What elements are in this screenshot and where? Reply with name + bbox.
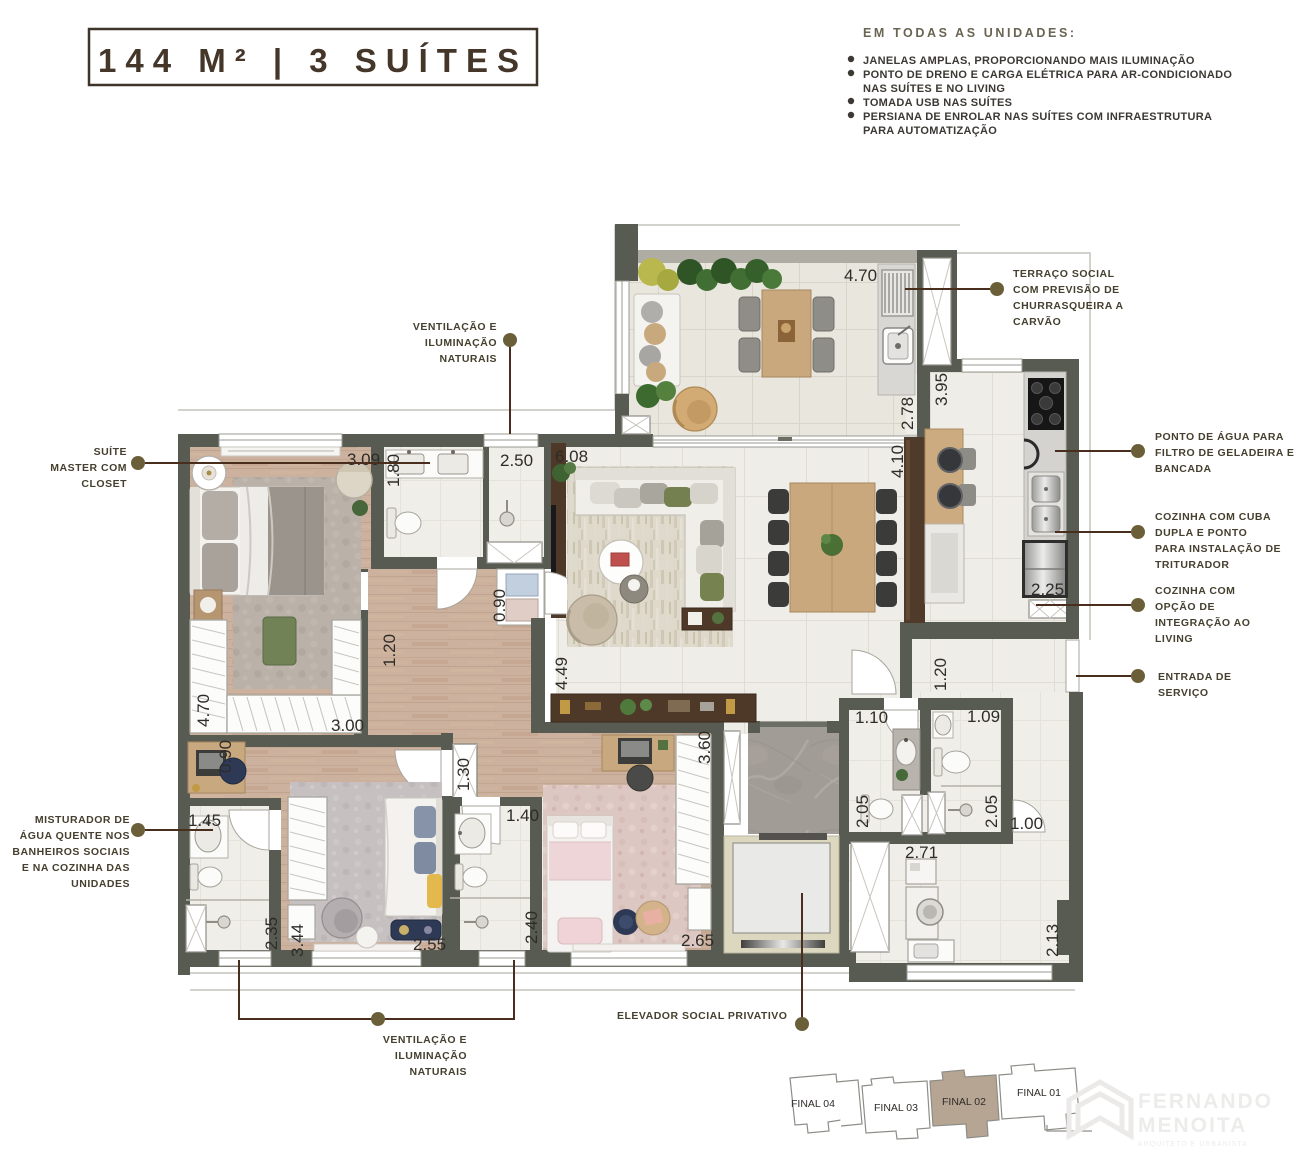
- svg-text:3.95: 3.95: [932, 373, 951, 406]
- svg-text:1.30: 1.30: [454, 758, 473, 791]
- svg-text:PARA INSTALAÇÃO DE: PARA INSTALAÇÃO DE: [1155, 542, 1281, 555]
- svg-text:FINAL 02: FINAL 02: [942, 1096, 986, 1108]
- svg-text:1.80: 1.80: [384, 454, 403, 487]
- svg-text:0.90: 0.90: [216, 740, 235, 773]
- svg-text:144 M² | 3 SUÍTES: 144 M² | 3 SUÍTES: [98, 42, 528, 79]
- svg-text:E NA COZINHA DAS: E NA COZINHA DAS: [22, 862, 130, 874]
- svg-text:BANHEIROS SOCIAIS: BANHEIROS SOCIAIS: [12, 846, 130, 858]
- svg-text:TRITURADOR: TRITURADOR: [1155, 559, 1229, 571]
- svg-text:6.08: 6.08: [555, 447, 588, 466]
- svg-text:4.70: 4.70: [194, 694, 213, 727]
- svg-text:PERSIANA DE ENROLAR NAS SUÍTES: PERSIANA DE ENROLAR NAS SUÍTES COM INFRA…: [863, 110, 1212, 123]
- svg-text:TERRAÇO SOCIAL: TERRAÇO SOCIAL: [1013, 268, 1115, 280]
- svg-text:2.35: 2.35: [262, 917, 281, 950]
- svg-text:2.05: 2.05: [853, 795, 872, 828]
- svg-text:NATURAIS: NATURAIS: [410, 1066, 467, 1078]
- svg-text:2.65: 2.65: [681, 931, 714, 950]
- svg-text:MISTURADOR DE: MISTURADOR DE: [35, 814, 130, 826]
- svg-text:BANCADA: BANCADA: [1155, 463, 1212, 475]
- svg-text:2.55: 2.55: [413, 935, 446, 954]
- svg-text:MASTER COM: MASTER COM: [50, 462, 127, 474]
- svg-text:NAS SUÍTES E NO LIVING: NAS SUÍTES E NO LIVING: [863, 82, 1005, 95]
- svg-text:FERNANDO: FERNANDO: [1138, 1090, 1273, 1113]
- svg-text:COZINHA COM CUBA: COZINHA COM CUBA: [1155, 511, 1271, 523]
- svg-text:3.00: 3.00: [331, 716, 364, 735]
- svg-text:1.20: 1.20: [931, 658, 950, 691]
- svg-text:NATURAIS: NATURAIS: [440, 353, 497, 365]
- svg-text:PONTO DE ÁGUA PARA: PONTO DE ÁGUA PARA: [1155, 430, 1284, 443]
- svg-text:0.90: 0.90: [490, 589, 509, 622]
- svg-text:4.49: 4.49: [552, 657, 571, 690]
- svg-text:1.09: 1.09: [967, 707, 1000, 726]
- svg-text:1.10: 1.10: [855, 708, 888, 727]
- svg-text:4.70: 4.70: [844, 266, 877, 285]
- svg-text:VENTILAÇÃO E: VENTILAÇÃO E: [413, 320, 497, 333]
- svg-text:CLOSET: CLOSET: [81, 478, 127, 490]
- svg-text:2.13: 2.13: [1043, 924, 1062, 957]
- svg-text:INTEGRAÇÃO AO: INTEGRAÇÃO AO: [1155, 616, 1250, 629]
- svg-text:FINAL 04: FINAL 04: [791, 1098, 835, 1110]
- svg-text:2.71: 2.71: [905, 843, 938, 862]
- svg-text:2.05: 2.05: [982, 795, 1001, 828]
- svg-text:ENTRADA DE: ENTRADA DE: [1158, 671, 1231, 683]
- svg-text:CARVÃO: CARVÃO: [1013, 315, 1061, 328]
- svg-text:FINAL 03: FINAL 03: [874, 1102, 918, 1114]
- svg-text:COZINHA COM: COZINHA COM: [1155, 585, 1235, 597]
- svg-text:2.25: 2.25: [1031, 580, 1064, 599]
- svg-text:DUPLA E PONTO: DUPLA E PONTO: [1155, 527, 1247, 539]
- svg-text:2.50: 2.50: [500, 451, 533, 470]
- svg-text:SUÍTE: SUÍTE: [94, 445, 127, 458]
- svg-text:3.60: 3.60: [695, 731, 714, 764]
- svg-text:PONTO DE DRENO E CARGA ELÉTRIC: PONTO DE DRENO E CARGA ELÉTRICA PARA AR-…: [863, 68, 1232, 81]
- svg-text:UNIDADES: UNIDADES: [71, 878, 130, 890]
- svg-text:COM PREVISÃO DE: COM PREVISÃO DE: [1013, 283, 1120, 296]
- svg-text:ARQUITETO E URBANISTA: ARQUITETO E URBANISTA: [1138, 1141, 1248, 1148]
- svg-text:4.10: 4.10: [888, 445, 907, 478]
- svg-text:PARA AUTOMATIZAÇÃO: PARA AUTOMATIZAÇÃO: [863, 124, 997, 137]
- svg-text:CHURRASQUEIRA A: CHURRASQUEIRA A: [1013, 300, 1124, 312]
- svg-text:3.09: 3.09: [347, 450, 380, 469]
- svg-text:EM TODAS AS UNIDADES:: EM TODAS AS UNIDADES:: [863, 26, 1077, 40]
- svg-text:OPÇÃO DE: OPÇÃO DE: [1155, 600, 1215, 613]
- svg-text:2.78: 2.78: [898, 397, 917, 430]
- svg-text:3.44: 3.44: [288, 924, 307, 957]
- svg-text:LIVING: LIVING: [1155, 633, 1193, 645]
- svg-text:ÁGUA QUENTE NOS: ÁGUA QUENTE NOS: [20, 829, 130, 842]
- svg-text:1.00: 1.00: [1010, 814, 1043, 833]
- svg-text:ILUMINAÇÃO: ILUMINAÇÃO: [425, 336, 497, 349]
- svg-text:MENOITA: MENOITA: [1138, 1114, 1247, 1137]
- svg-text:1.40: 1.40: [506, 806, 539, 825]
- svg-text:ELEVADOR SOCIAL PRIVATIVO: ELEVADOR SOCIAL PRIVATIVO: [617, 1010, 787, 1022]
- svg-text:1.45: 1.45: [188, 811, 221, 830]
- svg-text:2.40: 2.40: [522, 911, 541, 944]
- svg-text:FILTRO DE GELADEIRA E: FILTRO DE GELADEIRA E: [1155, 447, 1294, 459]
- svg-text:FINAL 01: FINAL 01: [1017, 1087, 1061, 1099]
- svg-text:JANELAS AMPLAS, PROPORCIONANDO: JANELAS AMPLAS, PROPORCIONANDO MAIS ILUM…: [863, 54, 1195, 67]
- svg-text:SERVIÇO: SERVIÇO: [1158, 687, 1209, 699]
- svg-text:VENTILAÇÃO E: VENTILAÇÃO E: [383, 1033, 467, 1046]
- svg-text:ILUMINAÇÃO: ILUMINAÇÃO: [395, 1049, 467, 1062]
- svg-text:1.20: 1.20: [380, 634, 399, 667]
- svg-text:TOMADA USB NAS SUÍTES: TOMADA USB NAS SUÍTES: [863, 96, 1012, 109]
